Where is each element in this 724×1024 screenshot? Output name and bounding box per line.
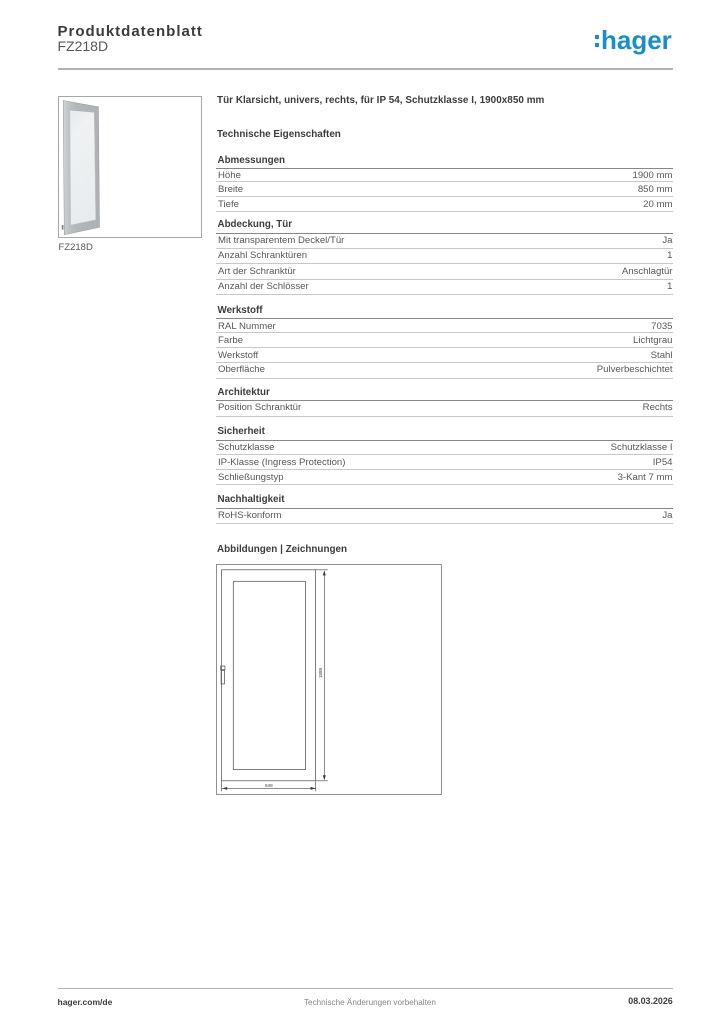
- svg-text:848: 848: [264, 783, 272, 788]
- svg-text:1888: 1888: [317, 667, 322, 678]
